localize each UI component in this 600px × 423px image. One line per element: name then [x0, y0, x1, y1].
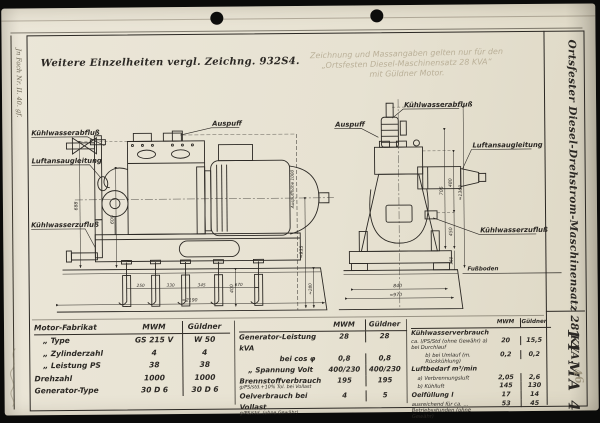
spec-tables: Motor-Fabrikat MWM Güldner „ Type GS 215…: [34, 318, 547, 406]
dim-1360: ≈1360: [458, 185, 464, 201]
row-label: Generator-Leistung kVA: [239, 332, 323, 355]
cell-mwm: 4: [324, 390, 366, 401]
row-label: Oelfüllung l: [412, 390, 492, 399]
right-machine-outline: [337, 98, 562, 310]
label-coolant-in: Kühlwasserzufluß: [31, 221, 99, 230]
motor-table: Motor-Fabrikat MWM Güldner „ Type GS 215…: [34, 321, 231, 407]
dim-688: 688: [73, 201, 79, 210]
col-header-mwm: MWM: [323, 319, 365, 330]
col-header-guldner: Güldner: [182, 321, 226, 334]
dim-2190: ≈2190: [182, 297, 198, 303]
paper-crease: [1, 15, 595, 21]
row-label: „ Leistung PS: [34, 360, 126, 373]
cell-guldner: 0,8: [365, 353, 403, 364]
label-exhaust: Auspuff: [334, 120, 366, 128]
table-row: b) bei Umlauf (m. Rückkühlung) 0,2 0,2: [411, 350, 551, 365]
label-floor: Fußboden: [468, 266, 499, 272]
dim-250: 250: [137, 283, 145, 288]
cell-mwm: 30 D 6: [127, 384, 183, 397]
cell-mwm: 2,05: [491, 373, 520, 382]
left-dimension-texts: 688 600 250 330 345 670 400 ≈2190 Auspuf…: [73, 169, 313, 304]
row-label-main: Oelverbrauch bei Vollast: [240, 392, 308, 412]
cell-mwm: 400/230: [323, 364, 365, 375]
pencil-scribble: [6, 346, 23, 408]
cooling-piping: [65, 136, 128, 263]
table-row: ca. l/PS/Std (ohne Gewähr) a) bei Durchl…: [411, 336, 551, 351]
dim-450: 450: [448, 227, 454, 236]
row-label: „ Type: [34, 335, 126, 348]
cell-mwm: 0,8: [323, 353, 365, 364]
cell-mwm: 28: [323, 331, 365, 342]
row-label: ausreichend für ca. … Betriebsstunden (o…: [412, 401, 492, 420]
cell-mwm: 20: [491, 336, 520, 345]
row-label: b) bei Umlauf (m. Rückkühlung): [411, 353, 491, 366]
col-header-guldner: Güldner: [520, 318, 547, 327]
table-row: Generator-Type 30 D 6 30 D 6: [35, 384, 231, 398]
right-dimension-texts: 705 480 450 ≈1360 160 840 ≈970: [388, 178, 464, 298]
dim-330: 330: [167, 283, 175, 288]
col-header-guldner: Güldner: [365, 319, 403, 330]
row-label: „ Zylinderzahl: [34, 347, 126, 360]
table-row: Generator-Leistung kVA 28 28: [239, 331, 407, 354]
consumption-table: MWM Güldner Kühlwasserverbrauch ca. l/PS…: [406, 318, 552, 403]
motor-header-label: Motor-Fabrikat: [34, 322, 126, 335]
dim-670: 670: [235, 282, 243, 287]
cell-mwm: 145: [492, 381, 521, 390]
cell-guldner: 14: [521, 390, 548, 399]
cell-guldner: 30 D 6: [183, 384, 227, 397]
cell-mwm: GS 215 V: [126, 334, 182, 347]
label-coolant-in: Kühlwasserzufluß: [480, 226, 548, 235]
cell-mwm: 17: [492, 390, 521, 399]
row-label: Kühlwasserverbrauch: [411, 328, 491, 337]
table-row: Brennstoffverbrauch g/PS/std.+10% Tol. b…: [239, 375, 407, 391]
row-label: Brennstoffverbrauch g/PS/std.+10% Tol. b…: [239, 376, 323, 392]
row-label: Luftbedarf m³/min: [411, 365, 491, 374]
cell-mwm: 195: [323, 375, 365, 386]
row-label: ca. l/PS/Std (ohne Gewähr) a) bei Durchl…: [411, 339, 491, 352]
cell-guldner: 0,2: [520, 350, 547, 359]
row-label: a) Verbrennungsluft: [411, 375, 491, 382]
row-label: bei cos φ: [239, 354, 323, 366]
dim-exhaust-height: Auspuffhöhe 1000: [290, 169, 295, 209]
drawing-sheet: Jn Fach Nr. II. 40. gf. Weitere Einzelhe…: [1, 3, 599, 415]
dim-970: ≈970: [389, 292, 402, 298]
cell-guldner: W 50: [182, 334, 226, 347]
dim-280: ≈280: [308, 283, 313, 295]
cell-guldner: 400/230: [365, 364, 403, 375]
generator-table: MWM Güldner Generator-Leistung kVA 28 28…: [234, 319, 408, 405]
cell-guldner: 1000: [182, 371, 226, 384]
table-row: ausreichend für ca. … Betriebsstunden (o…: [412, 398, 552, 419]
punch-hole-right: [370, 9, 383, 22]
row-label: „ Spannung Volt: [239, 365, 323, 377]
scanned-drawing-photo: { "sheet": { "top_note": "Weitere Einzel…: [0, 0, 600, 421]
reference-note: Weitere Einzelheiten vergl. Zeichng. 932…: [41, 56, 300, 69]
label-coolant-out: Kühlwasserabfluß: [404, 100, 473, 109]
label-coolant-out: Kühlwasserabfluß: [31, 129, 100, 138]
cell-guldner: 45: [521, 398, 548, 407]
cell-guldner: 4: [182, 346, 226, 359]
faded-stamp: Zeichnung und Massangaben gelten nur für…: [281, 46, 532, 82]
cell-guldner: 195: [365, 375, 403, 386]
dim-840: 840: [393, 283, 402, 289]
table-row: Oelverbrauch bei Vollast g/PS/std. (ohne…: [240, 390, 408, 417]
cell-guldner: 2,6: [520, 373, 547, 382]
label-air-intake: Luftansaugleitung: [32, 157, 102, 166]
cell-guldner: 28: [365, 331, 403, 342]
cell-mwm: 4: [126, 347, 182, 360]
dim-600: 600: [110, 215, 116, 224]
row-label: Oelverbrauch bei Vollast g/PS/std. (ohne…: [240, 391, 324, 418]
row-label: b) Kühlluft: [412, 384, 492, 391]
cell-guldner: 38: [182, 359, 226, 372]
dim-480: 480: [448, 178, 454, 187]
cell-mwm: 1000: [126, 372, 182, 385]
dim-935: ≈935: [299, 246, 305, 259]
right-view-svg: 705 480 450 ≈1360 160 840 ≈970 Kühlwasse…: [332, 92, 564, 319]
left-callout-labels: Kühlwasserabfluß Luftansaugleitung Kühlw…: [30, 119, 244, 248]
dim-705: 705: [439, 186, 445, 195]
label-exhaust: Auspuff: [211, 119, 243, 127]
left-view-svg: 688 600 250 330 345 670 400 ≈2190 Auspuf…: [30, 94, 342, 322]
cell-guldner: 5: [366, 390, 404, 401]
cell-mwm: 0,2: [491, 350, 520, 359]
col-header-mwm: MWM: [126, 321, 182, 334]
row-label: Generator-Type: [35, 385, 127, 398]
cell-mwm: 38: [126, 359, 182, 372]
row-label: Drehzahl: [34, 372, 126, 385]
label-air-intake: Luftansaugleitung: [472, 141, 542, 150]
margin-filing-note: Jn Fach Nr. II. 40. gf.: [15, 48, 24, 117]
dim-345: 345: [198, 282, 206, 287]
punch-hole-left: [210, 12, 223, 25]
dim-400: 400: [229, 284, 235, 293]
row-label-sub: g/PS/std. (ohne Gewähr): [240, 412, 324, 418]
dim-160: 160: [448, 256, 453, 264]
col-header-mwm: MWM: [491, 318, 520, 327]
cell-guldner: 15,5: [520, 336, 547, 345]
cell-guldner: 130: [521, 381, 548, 390]
cell-mwm: 53: [492, 399, 521, 408]
